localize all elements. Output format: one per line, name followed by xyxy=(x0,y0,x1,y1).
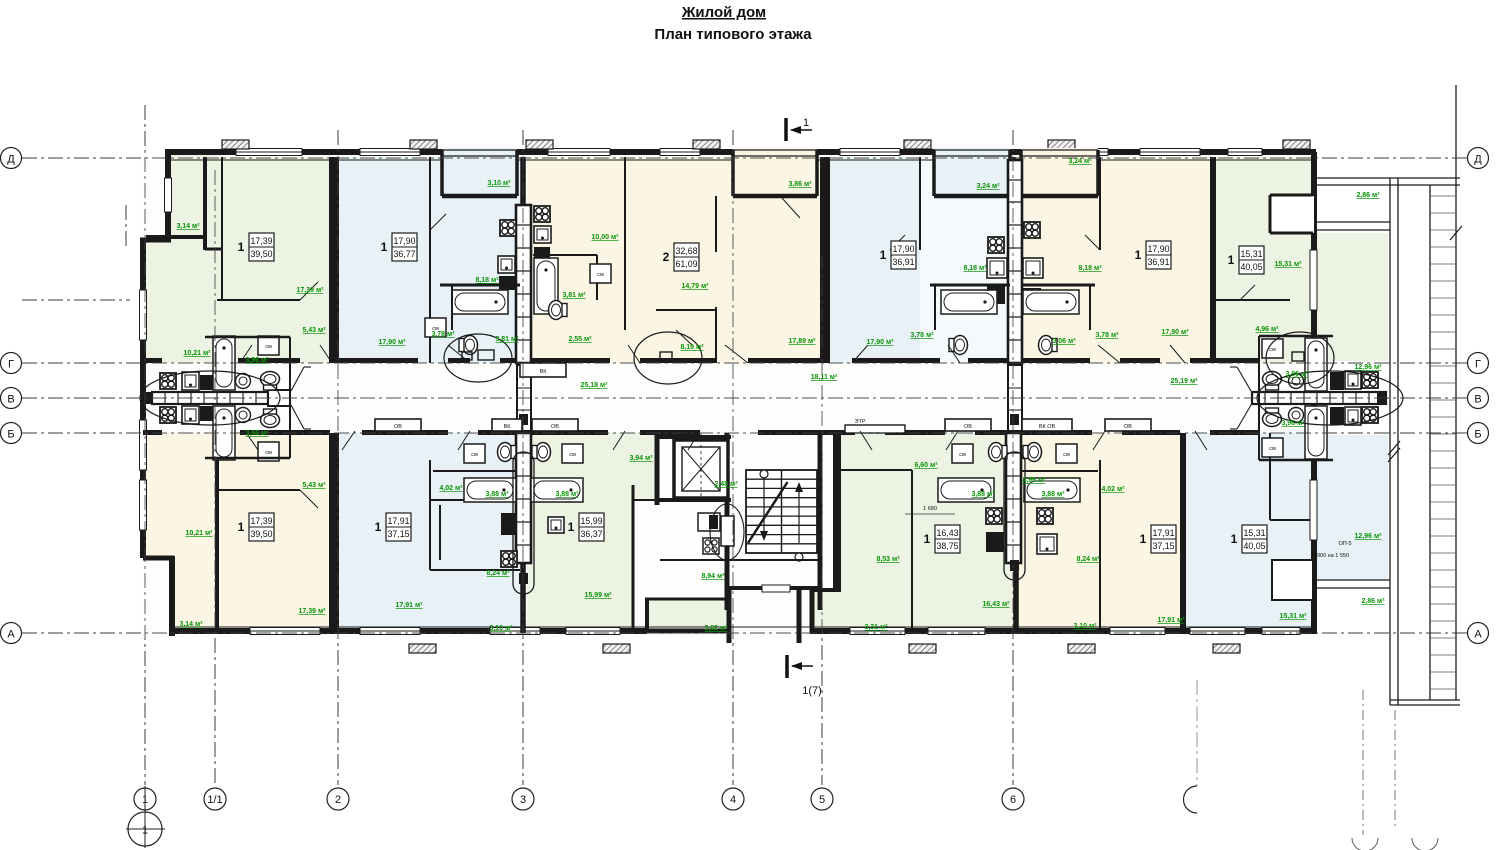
svg-text:1: 1 xyxy=(1135,248,1142,262)
svg-text:А: А xyxy=(7,629,15,641)
svg-text:15,31 м²: 15,31 м² xyxy=(1275,261,1303,268)
svg-text:17,39: 17,39 xyxy=(250,516,272,526)
svg-text:План типового этажа: План типового этажа xyxy=(654,26,812,43)
svg-text:3,96 м²: 3,96 м² xyxy=(1281,420,1305,427)
svg-text:8,19 м²: 8,19 м² xyxy=(680,344,704,351)
svg-text:8,18 м²: 8,18 м² xyxy=(475,277,499,284)
svg-text:8,24 м²: 8,24 м² xyxy=(1076,556,1100,563)
svg-text:37,15: 37,15 xyxy=(1152,541,1174,551)
svg-text:1(7): 1(7) xyxy=(802,685,822,697)
svg-text:ЭТР: ЭТР xyxy=(855,419,866,425)
svg-text:1: 1 xyxy=(880,248,887,262)
svg-text:1: 1 xyxy=(142,825,148,837)
svg-text:ОВ: ОВ xyxy=(394,424,402,430)
svg-text:1: 1 xyxy=(1228,253,1235,267)
svg-text:3,62 м²: 3,62 м² xyxy=(704,625,728,632)
svg-text:3,78 м²: 3,78 м² xyxy=(910,332,934,339)
svg-text:17,90 м²: 17,90 м² xyxy=(867,339,895,346)
svg-text:В: В xyxy=(7,394,14,406)
svg-text:15,99: 15,99 xyxy=(580,516,602,526)
svg-text:40,05: 40,05 xyxy=(1243,541,1265,551)
svg-text:900 на 1 550: 900 на 1 550 xyxy=(1317,553,1349,559)
svg-text:ВК ОВ: ВК ОВ xyxy=(1039,424,1056,430)
svg-text:8,94 м²: 8,94 м² xyxy=(701,573,725,580)
svg-text:1: 1 xyxy=(924,532,931,546)
svg-text:39,50: 39,50 xyxy=(250,529,272,539)
svg-text:17,90: 17,90 xyxy=(393,236,415,246)
svg-text:4: 4 xyxy=(730,794,736,806)
svg-text:5,43 м²: 5,43 м² xyxy=(302,482,326,489)
svg-text:2,86 м²: 2,86 м² xyxy=(1356,192,1380,199)
svg-text:см: см xyxy=(597,272,604,278)
svg-text:см: см xyxy=(1269,347,1276,353)
svg-text:3,31 м²: 3,31 м² xyxy=(864,624,888,631)
svg-text:1: 1 xyxy=(238,520,245,534)
svg-text:17,39 м²: 17,39 м² xyxy=(297,287,325,294)
svg-text:8,18 м²: 8,18 м² xyxy=(963,265,987,272)
svg-text:40,05: 40,05 xyxy=(1240,262,1262,272)
svg-text:см: см xyxy=(1063,452,1070,458)
svg-text:3,96 м²: 3,96 м² xyxy=(245,357,269,364)
svg-text:17,91 м²: 17,91 м² xyxy=(1158,617,1186,624)
svg-text:8,53 м²: 8,53 м² xyxy=(876,556,900,563)
svg-text:ВК: ВК xyxy=(504,424,512,430)
svg-text:Г: Г xyxy=(1475,359,1481,371)
svg-text:ОВ: ОВ xyxy=(551,424,559,430)
svg-text:см: см xyxy=(265,344,272,350)
svg-text:3,24 м²: 3,24 м² xyxy=(1068,158,1092,165)
svg-text:см: см xyxy=(471,452,478,458)
svg-text:ВК: ВК xyxy=(540,369,548,375)
svg-text:36,91: 36,91 xyxy=(1147,257,1169,267)
svg-text:8,24 м²: 8,24 м² xyxy=(486,570,510,577)
svg-text:Б: Б xyxy=(7,429,14,441)
svg-text:3,10 м²: 3,10 м² xyxy=(1073,623,1097,630)
svg-text:Б: Б xyxy=(1474,429,1481,441)
svg-text:6,60 м²: 6,60 м² xyxy=(914,462,938,469)
svg-text:15,31: 15,31 xyxy=(1243,528,1265,538)
svg-text:2,86 м²: 2,86 м² xyxy=(1361,598,1385,605)
svg-text:39,50: 39,50 xyxy=(250,249,272,259)
svg-text:61,09: 61,09 xyxy=(675,259,697,269)
svg-text:6: 6 xyxy=(1010,794,1016,806)
svg-text:17,39 м²: 17,39 м² xyxy=(299,608,327,615)
svg-text:16,43: 16,43 xyxy=(936,528,958,538)
svg-text:5,43 м²: 5,43 м² xyxy=(302,327,326,334)
svg-text:А: А xyxy=(1474,629,1482,641)
svg-text:2: 2 xyxy=(335,794,341,806)
svg-text:3,88 м²: 3,88 м² xyxy=(1041,491,1065,498)
svg-text:см: см xyxy=(265,450,272,456)
svg-text:36,91: 36,91 xyxy=(892,257,914,267)
svg-text:3,81 м²: 3,81 м² xyxy=(562,292,586,299)
svg-text:ОП-5: ОП-5 xyxy=(1338,541,1351,547)
svg-text:3,88 м²: 3,88 м² xyxy=(971,491,995,498)
svg-text:15,99 м²: 15,99 м² xyxy=(585,592,613,599)
svg-text:15,31: 15,31 xyxy=(1240,249,1262,259)
svg-text:Г: Г xyxy=(8,359,14,371)
svg-text:Д: Д xyxy=(7,154,15,166)
svg-text:ОВ: ОВ xyxy=(1124,424,1132,430)
svg-text:2,55 м²: 2,55 м² xyxy=(568,336,592,343)
svg-text:3,06 м²: 3,06 м² xyxy=(1052,338,1076,345)
svg-text:36,77: 36,77 xyxy=(393,249,415,259)
svg-text:12,96 м²: 12,96 м² xyxy=(1355,533,1383,540)
svg-text:16,43 м²: 16,43 м² xyxy=(983,601,1011,608)
svg-text:3: 3 xyxy=(520,794,526,806)
svg-text:1: 1 xyxy=(1140,532,1147,546)
svg-text:см: см xyxy=(959,452,966,458)
svg-text:10,00 м²: 10,00 м² xyxy=(592,234,620,241)
svg-text:14,79 м²: 14,79 м² xyxy=(682,283,710,290)
svg-text:1: 1 xyxy=(568,520,575,534)
svg-text:17,90 м²: 17,90 м² xyxy=(379,339,407,346)
svg-text:см: см xyxy=(569,452,576,458)
svg-text:17,91 м²: 17,91 м² xyxy=(396,602,424,609)
svg-text:3,10 м²: 3,10 м² xyxy=(489,625,513,632)
svg-text:10,21 м²: 10,21 м² xyxy=(184,350,212,357)
svg-text:17,89 м²: 17,89 м² xyxy=(789,338,817,345)
svg-text:3,94 м²: 3,94 м² xyxy=(629,455,653,462)
svg-text:1/1: 1/1 xyxy=(207,794,222,806)
svg-text:1: 1 xyxy=(803,117,809,129)
svg-text:15,31 м²: 15,31 м² xyxy=(1280,613,1308,620)
svg-text:36,37: 36,37 xyxy=(580,529,602,539)
svg-text:Д: Д xyxy=(1474,154,1482,166)
svg-text:ОВ: ОВ xyxy=(964,424,972,430)
svg-text:3,10 м²: 3,10 м² xyxy=(487,180,511,187)
svg-text:1: 1 xyxy=(381,240,388,254)
svg-text:3,96 м²: 3,96 м² xyxy=(245,430,269,437)
svg-text:17,90: 17,90 xyxy=(1147,244,1169,254)
svg-text:2: 2 xyxy=(663,250,670,264)
svg-text:В: В xyxy=(1474,394,1481,406)
svg-text:17,90: 17,90 xyxy=(892,244,914,254)
svg-text:1: 1 xyxy=(238,240,245,254)
svg-text:10,21 м²: 10,21 м² xyxy=(186,530,214,537)
svg-text:3,86 м²: 3,86 м² xyxy=(788,181,812,188)
svg-text:1: 1 xyxy=(375,520,382,534)
svg-text:25,19 м²: 25,19 м² xyxy=(1171,378,1199,385)
svg-text:25,18 м²: 25,18 м² xyxy=(581,382,609,389)
svg-text:38,75: 38,75 xyxy=(936,541,958,551)
svg-text:3,78 м²: 3,78 м² xyxy=(1095,332,1119,339)
svg-text:3,78 м²: 3,78 м² xyxy=(431,331,455,338)
svg-text:4,96 м²: 4,96 м² xyxy=(1255,326,1279,333)
svg-text:3,14 м²: 3,14 м² xyxy=(179,621,203,628)
svg-text:4,02 м²: 4,02 м² xyxy=(439,485,463,492)
svg-text:4,96 м²: 4,96 м² xyxy=(1022,477,1046,484)
svg-text:см: см xyxy=(1269,446,1276,452)
svg-text:4,02 м²: 4,02 м² xyxy=(1101,486,1125,493)
svg-text:3,88 м²: 3,88 м² xyxy=(555,491,579,498)
svg-text:37,15: 37,15 xyxy=(387,529,409,539)
svg-text:3,81 м²: 3,81 м² xyxy=(495,336,519,343)
svg-text:8,18 м²: 8,18 м² xyxy=(1078,265,1102,272)
svg-text:17,91: 17,91 xyxy=(1152,528,1174,538)
svg-text:17,91: 17,91 xyxy=(387,516,409,526)
svg-text:17,39: 17,39 xyxy=(250,236,272,246)
svg-text:1: 1 xyxy=(1231,532,1238,546)
svg-text:17,90 м²: 17,90 м² xyxy=(1162,329,1190,336)
svg-text:3,14 м²: 3,14 м² xyxy=(176,223,200,230)
svg-text:32,68: 32,68 xyxy=(675,246,697,256)
svg-text:3,88 м²: 3,88 м² xyxy=(485,491,509,498)
svg-text:Жилой дом: Жилой дом xyxy=(681,4,766,21)
svg-text:3,96 м²: 3,96 м² xyxy=(1285,371,1309,378)
svg-text:1 680: 1 680 xyxy=(923,506,937,512)
svg-text:2,48 м²: 2,48 м² xyxy=(714,481,738,488)
svg-text:18,11 м²: 18,11 м² xyxy=(811,374,838,381)
svg-text:12,96 м²: 12,96 м² xyxy=(1355,364,1383,371)
svg-text:5: 5 xyxy=(819,794,825,806)
svg-text:3,24 м²: 3,24 м² xyxy=(976,183,1000,190)
